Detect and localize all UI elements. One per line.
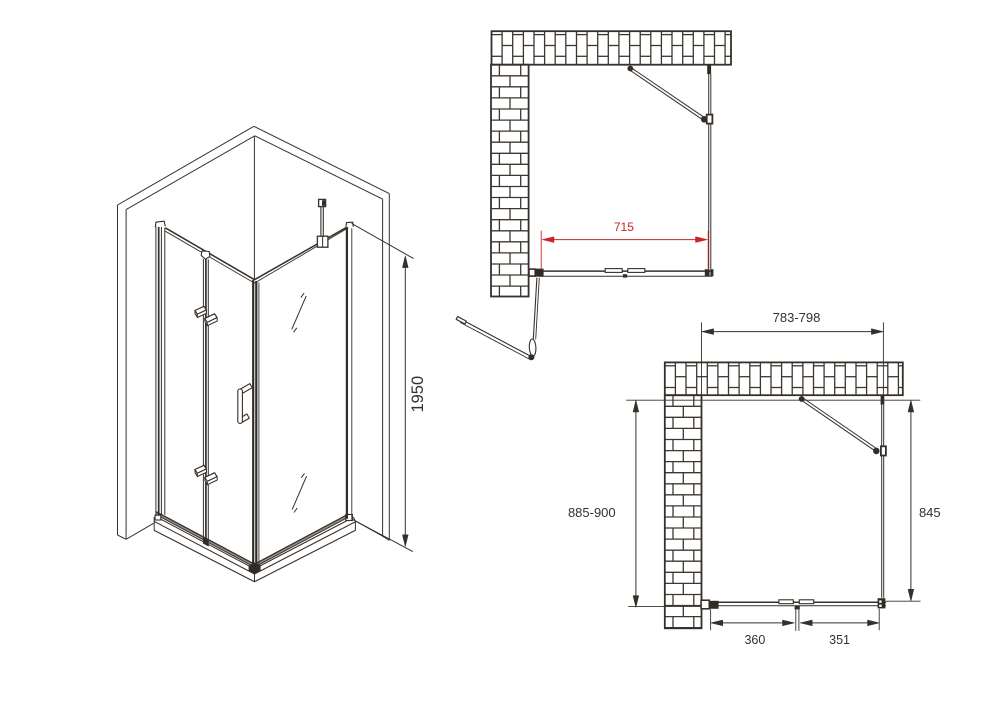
svg-text:351: 351 — [829, 633, 850, 647]
svg-text:360: 360 — [744, 633, 765, 647]
svg-text:783-798: 783-798 — [773, 310, 821, 325]
svg-text:845: 845 — [919, 505, 941, 520]
svg-text:885-900: 885-900 — [568, 505, 616, 520]
svg-text:1950: 1950 — [409, 376, 427, 413]
svg-text:715: 715 — [614, 220, 634, 234]
